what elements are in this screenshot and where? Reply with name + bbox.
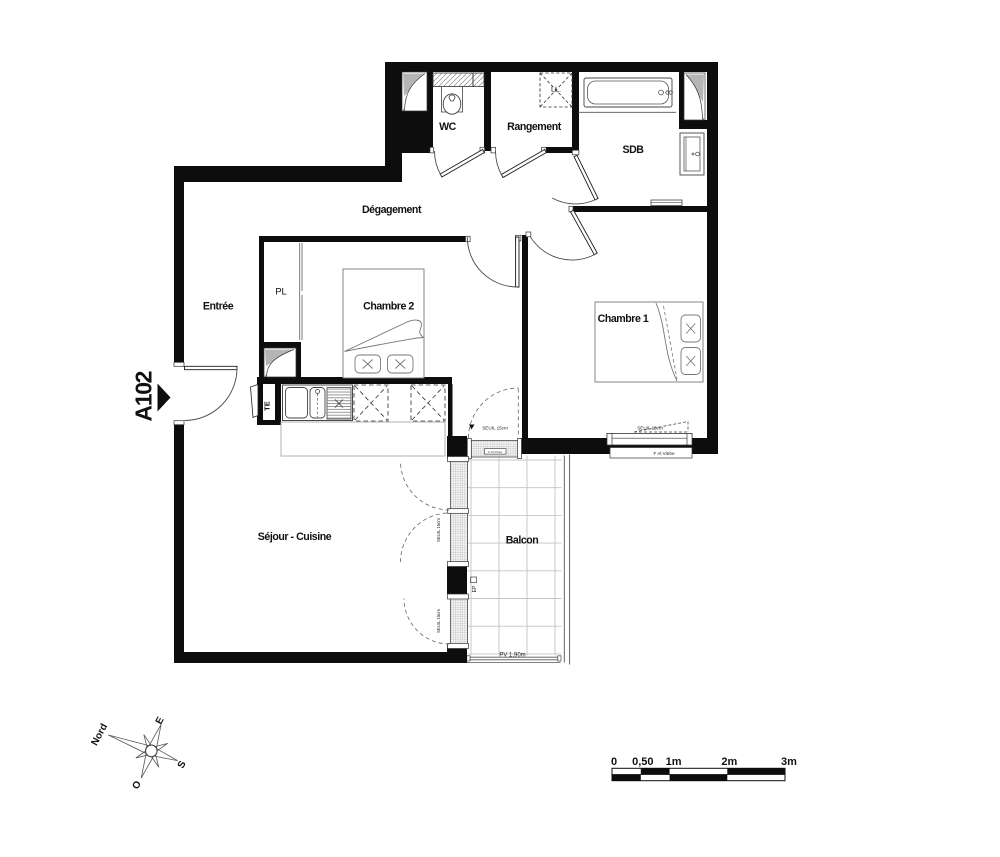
svg-text:WC: WC (439, 121, 457, 133)
svg-text:2m: 2m (721, 756, 737, 768)
svg-text:Séjour - Cuisine: Séjour - Cuisine (258, 531, 332, 543)
svg-text:Entrée: Entrée (203, 301, 234, 313)
svg-text:SEUIL 15cm: SEUIL 15cm (436, 518, 441, 542)
svg-text:Rangement: Rangement (507, 121, 562, 133)
svg-text:F Al Vitrée: F Al Vitrée (488, 450, 502, 454)
svg-text:Chambre 2: Chambre 2 (363, 301, 414, 313)
svg-text:SEUIL 15cm: SEUIL 15cm (482, 425, 508, 430)
svg-text:SEUIL 15cm: SEUIL 15cm (436, 609, 441, 633)
svg-text:PV 1,90m: PV 1,90m (499, 652, 525, 658)
svg-text:SDB: SDB (622, 144, 644, 156)
svg-text:TE: TE (263, 401, 272, 411)
svg-text:A102: A102 (131, 371, 157, 421)
svg-text:PL: PL (275, 287, 287, 298)
svg-text:0: 0 (611, 756, 617, 768)
svg-text:0,50: 0,50 (632, 756, 653, 768)
svg-text:1m: 1m (666, 756, 682, 768)
svg-text:Balcon: Balcon (506, 535, 539, 547)
svg-text:SEUIL 15cm: SEUIL 15cm (637, 426, 663, 431)
svg-text:Chambre 1: Chambre 1 (598, 313, 649, 325)
svg-text:F Al Vitrée: F Al Vitrée (653, 451, 675, 456)
svg-text:Dégagement: Dégagement (362, 204, 422, 216)
svg-text:3m: 3m (781, 756, 797, 768)
svg-text:EP: EP (472, 585, 478, 592)
svg-text:LL.: LL. (551, 85, 561, 94)
